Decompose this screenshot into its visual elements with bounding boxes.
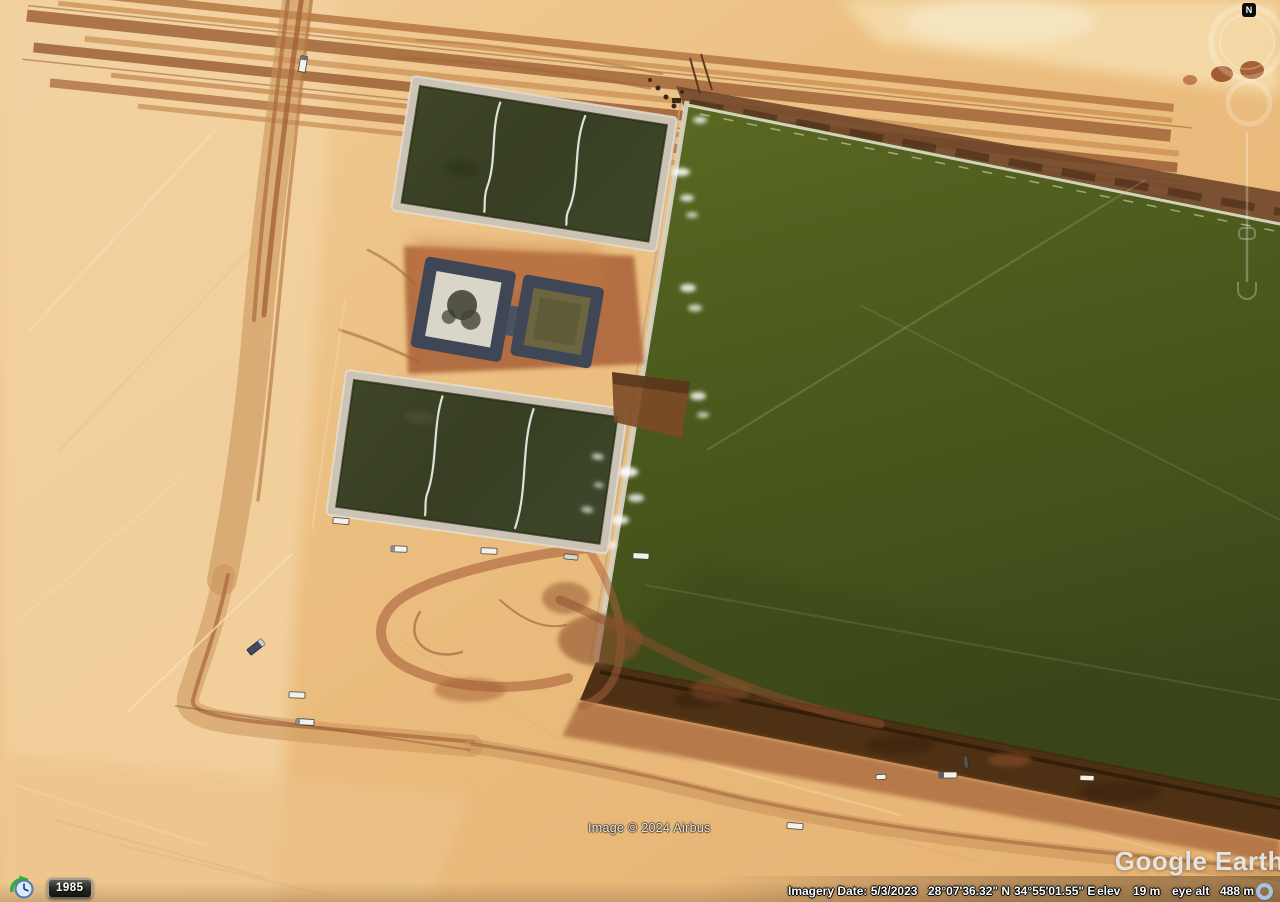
- historical-year-badge[interactable]: 1985: [47, 878, 93, 899]
- compass-n-icon[interactable]: N: [1242, 3, 1256, 17]
- status-eye-alt-label: eye alt: [1172, 881, 1209, 901]
- status-imagery-date: Imagery Date: 5/3/2023: [788, 881, 917, 901]
- navigation-controls[interactable]: [1180, 0, 1280, 310]
- status-longitude: 34°55'01.55" E: [1014, 881, 1095, 901]
- move-joystick-ring: [1228, 82, 1270, 124]
- status-elev-label: elev: [1097, 881, 1120, 901]
- streaming-indicator-icon: [1256, 883, 1273, 900]
- google-earth-watermark: Google Earth: [1115, 846, 1280, 877]
- lined-basins: [404, 240, 644, 374]
- status-eye-altitude: 488 m: [1220, 881, 1254, 901]
- zoom-slider-end: [1238, 282, 1256, 299]
- historical-imagery-clock-icon[interactable]: [8, 875, 38, 901]
- imagery-copyright: Image © 2024 Airbus: [588, 821, 711, 835]
- google-earth-window: N Image © 2024 Airbus Google Earth 1985 …: [0, 0, 1280, 902]
- satellite-imagery-canvas[interactable]: [0, 0, 1280, 902]
- status-elevation: 19 m: [1133, 881, 1160, 901]
- status-latitude: 28°07'36.32" N: [928, 881, 1010, 901]
